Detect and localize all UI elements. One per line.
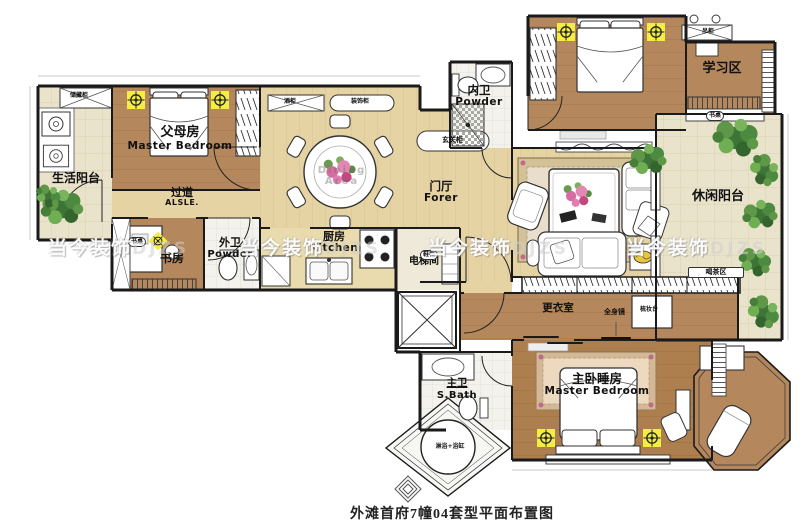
coffee-table	[549, 169, 619, 239]
watermark: 当今装饰DJZS	[240, 233, 381, 260]
full-mirror-label: 全身镜	[602, 308, 627, 317]
hanging-cabinet-label: 吊柜	[700, 28, 716, 36]
leisure-balcony-label: 休闲阳台	[668, 190, 768, 205]
foyer-label: 门厅Forer	[412, 180, 470, 205]
watermark: 当今装饰DJZS	[626, 233, 767, 260]
tr-bed	[577, 18, 643, 92]
dressing-room-label: 更衣室	[526, 303, 590, 315]
master-bath-label: 主卫S.Bath	[424, 378, 490, 401]
study-area-label: 学习区	[682, 62, 762, 77]
door-mat	[560, 131, 606, 139]
aisle-label: 过道ALSLE.	[152, 187, 212, 208]
watermark: 当今装饰DJZS	[428, 233, 569, 260]
logo-diamond	[395, 476, 421, 502]
parents-room-label: 父母房Master Bedroom	[118, 126, 242, 152]
inner-bath-label: 内卫Powder	[448, 84, 510, 109]
dresser-label: 梳妆台	[638, 306, 660, 314]
tea-area-label: 喝茶区	[688, 267, 744, 278]
service-balcony-label: 生活阳台	[38, 172, 114, 185]
plan-caption: 外滩首府7幢04套型平面布置图	[292, 503, 612, 523]
decor-cabinet-label: 装饰柜	[349, 98, 371, 106]
shower-tub-label: 淋浴+浴缸	[425, 443, 475, 451]
dining-area-label: Dining Area	[300, 165, 384, 187]
watermark: 当今装饰DJZS	[48, 233, 189, 260]
washing-machine	[42, 112, 70, 136]
entry-cabinet-label: 玄关柜	[440, 136, 465, 145]
storage-cabinet-label: 储藏柜	[68, 92, 90, 100]
area-desk-label: 书桌	[706, 111, 724, 121]
wine-cabinet-label: 酒柜	[282, 98, 298, 106]
octagon-bay	[694, 346, 790, 470]
study-cabinet	[132, 279, 196, 289]
floor-plan: 生活阳台 父母房Master Bedroom 过道ALSLE. 书房 外卫Pow…	[0, 0, 805, 531]
area-desk-box	[688, 97, 760, 109]
master-bedroom-label: 主卧睡房Master Bedroom	[508, 372, 686, 398]
utility-sink	[43, 145, 68, 167]
